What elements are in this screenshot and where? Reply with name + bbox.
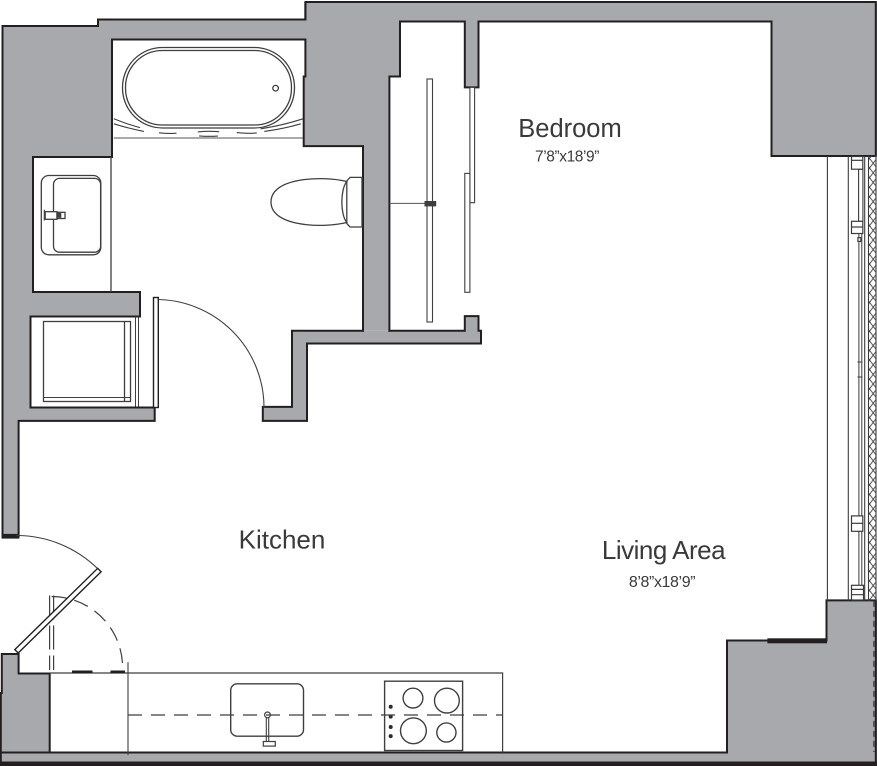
svg-text:Bedroom: Bedroom	[518, 115, 621, 143]
svg-text:Living Area: Living Area	[602, 535, 726, 565]
svg-text:8’8”x18’9”: 8’8”x18’9”	[629, 574, 695, 591]
svg-text:Kitchen: Kitchen	[239, 525, 326, 555]
svg-text:7’8”x18’9”: 7’8”x18’9”	[535, 149, 599, 166]
